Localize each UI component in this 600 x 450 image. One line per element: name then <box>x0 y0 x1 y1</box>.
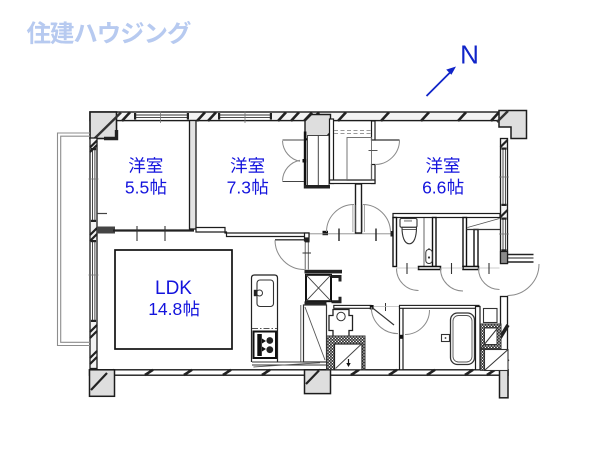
svg-text:5.5: 5.5 <box>125 177 149 197</box>
svg-text:6.6: 6.6 <box>422 177 446 197</box>
svg-text:N: N <box>460 40 479 70</box>
svg-text:LDK: LDK <box>155 278 192 299</box>
svg-text:14.8: 14.8 <box>148 299 182 319</box>
svg-text:7.3: 7.3 <box>227 177 251 197</box>
